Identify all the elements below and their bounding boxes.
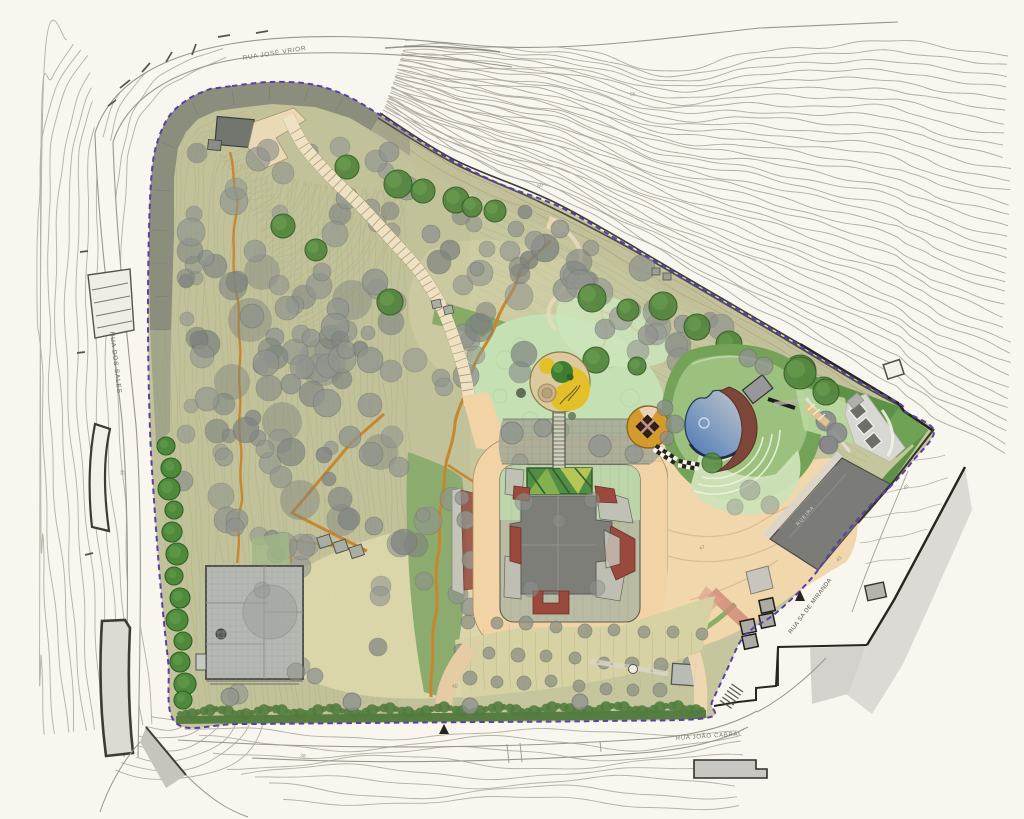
svg-text:40: 40 bbox=[452, 684, 458, 690]
svg-text:55: 55 bbox=[630, 92, 636, 98]
svg-text:38: 38 bbox=[300, 753, 306, 759]
